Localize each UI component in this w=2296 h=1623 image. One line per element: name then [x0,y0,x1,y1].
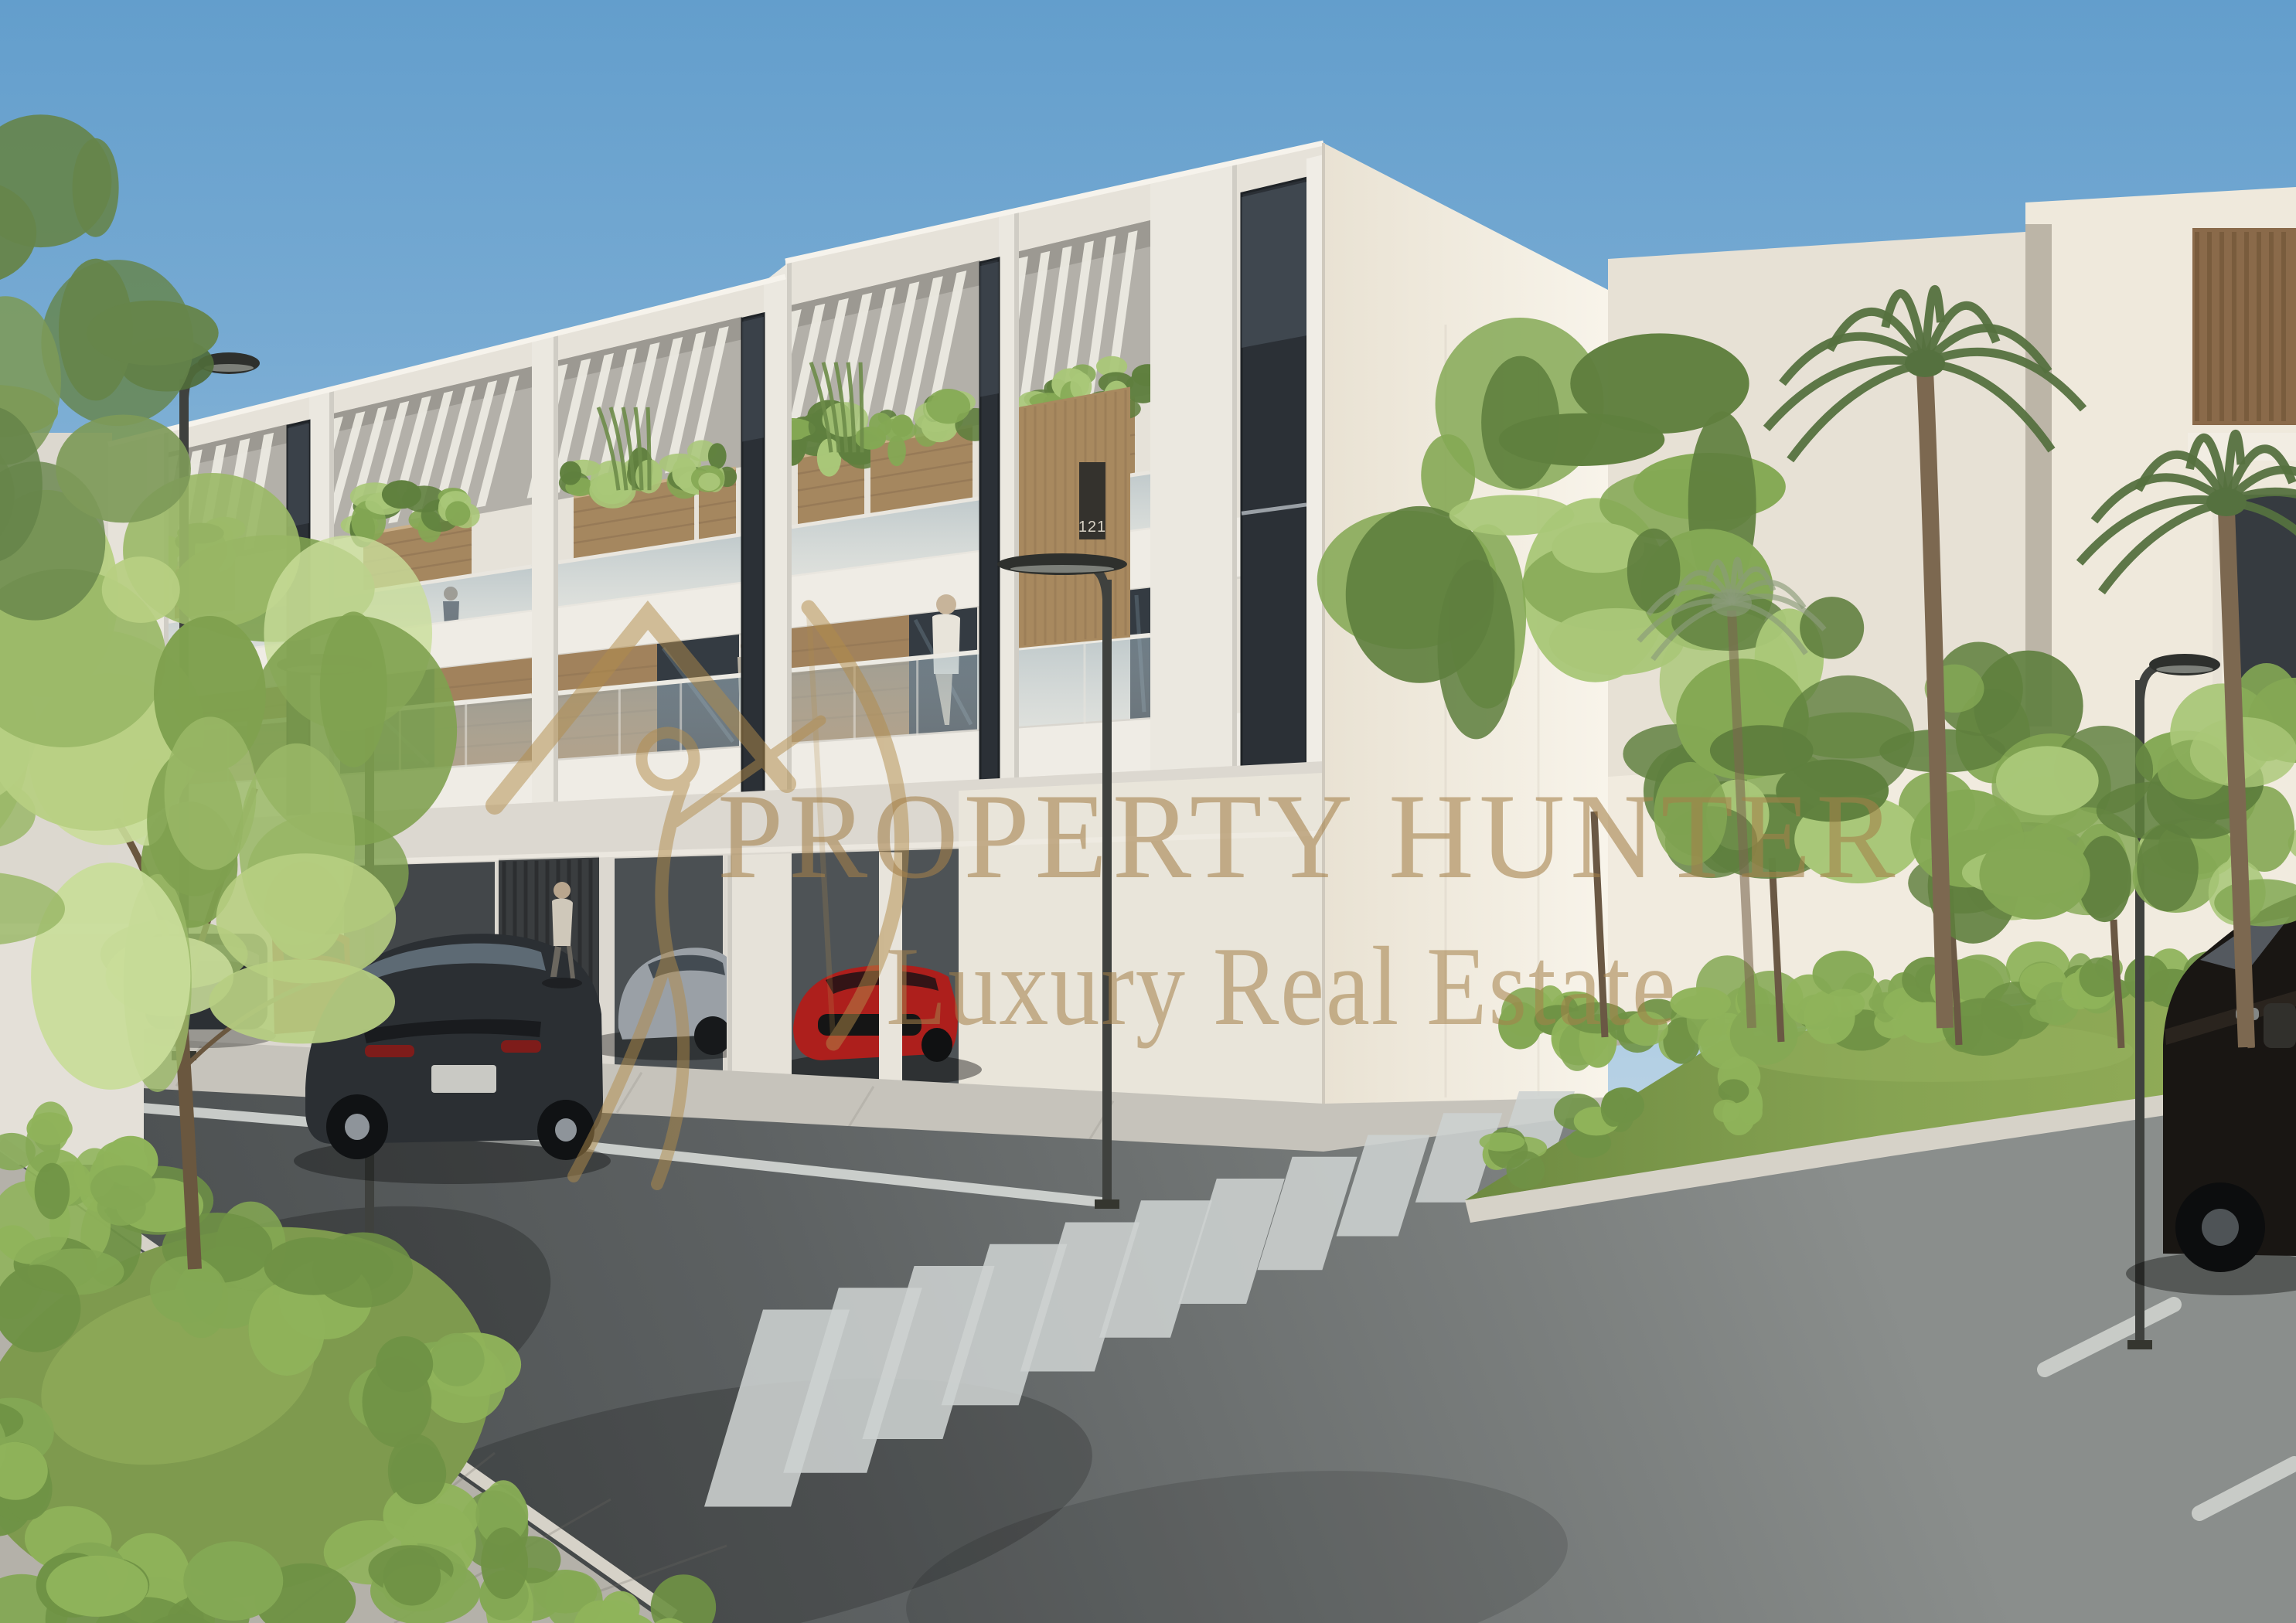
unit-number: 121 [1078,519,1106,536]
unit-plaque: 121 [1078,462,1106,539]
scene-svg: 121 [0,0,2296,1623]
render-canvas: 121 PROPERTY HUNTER Lux [0,0,2296,1623]
